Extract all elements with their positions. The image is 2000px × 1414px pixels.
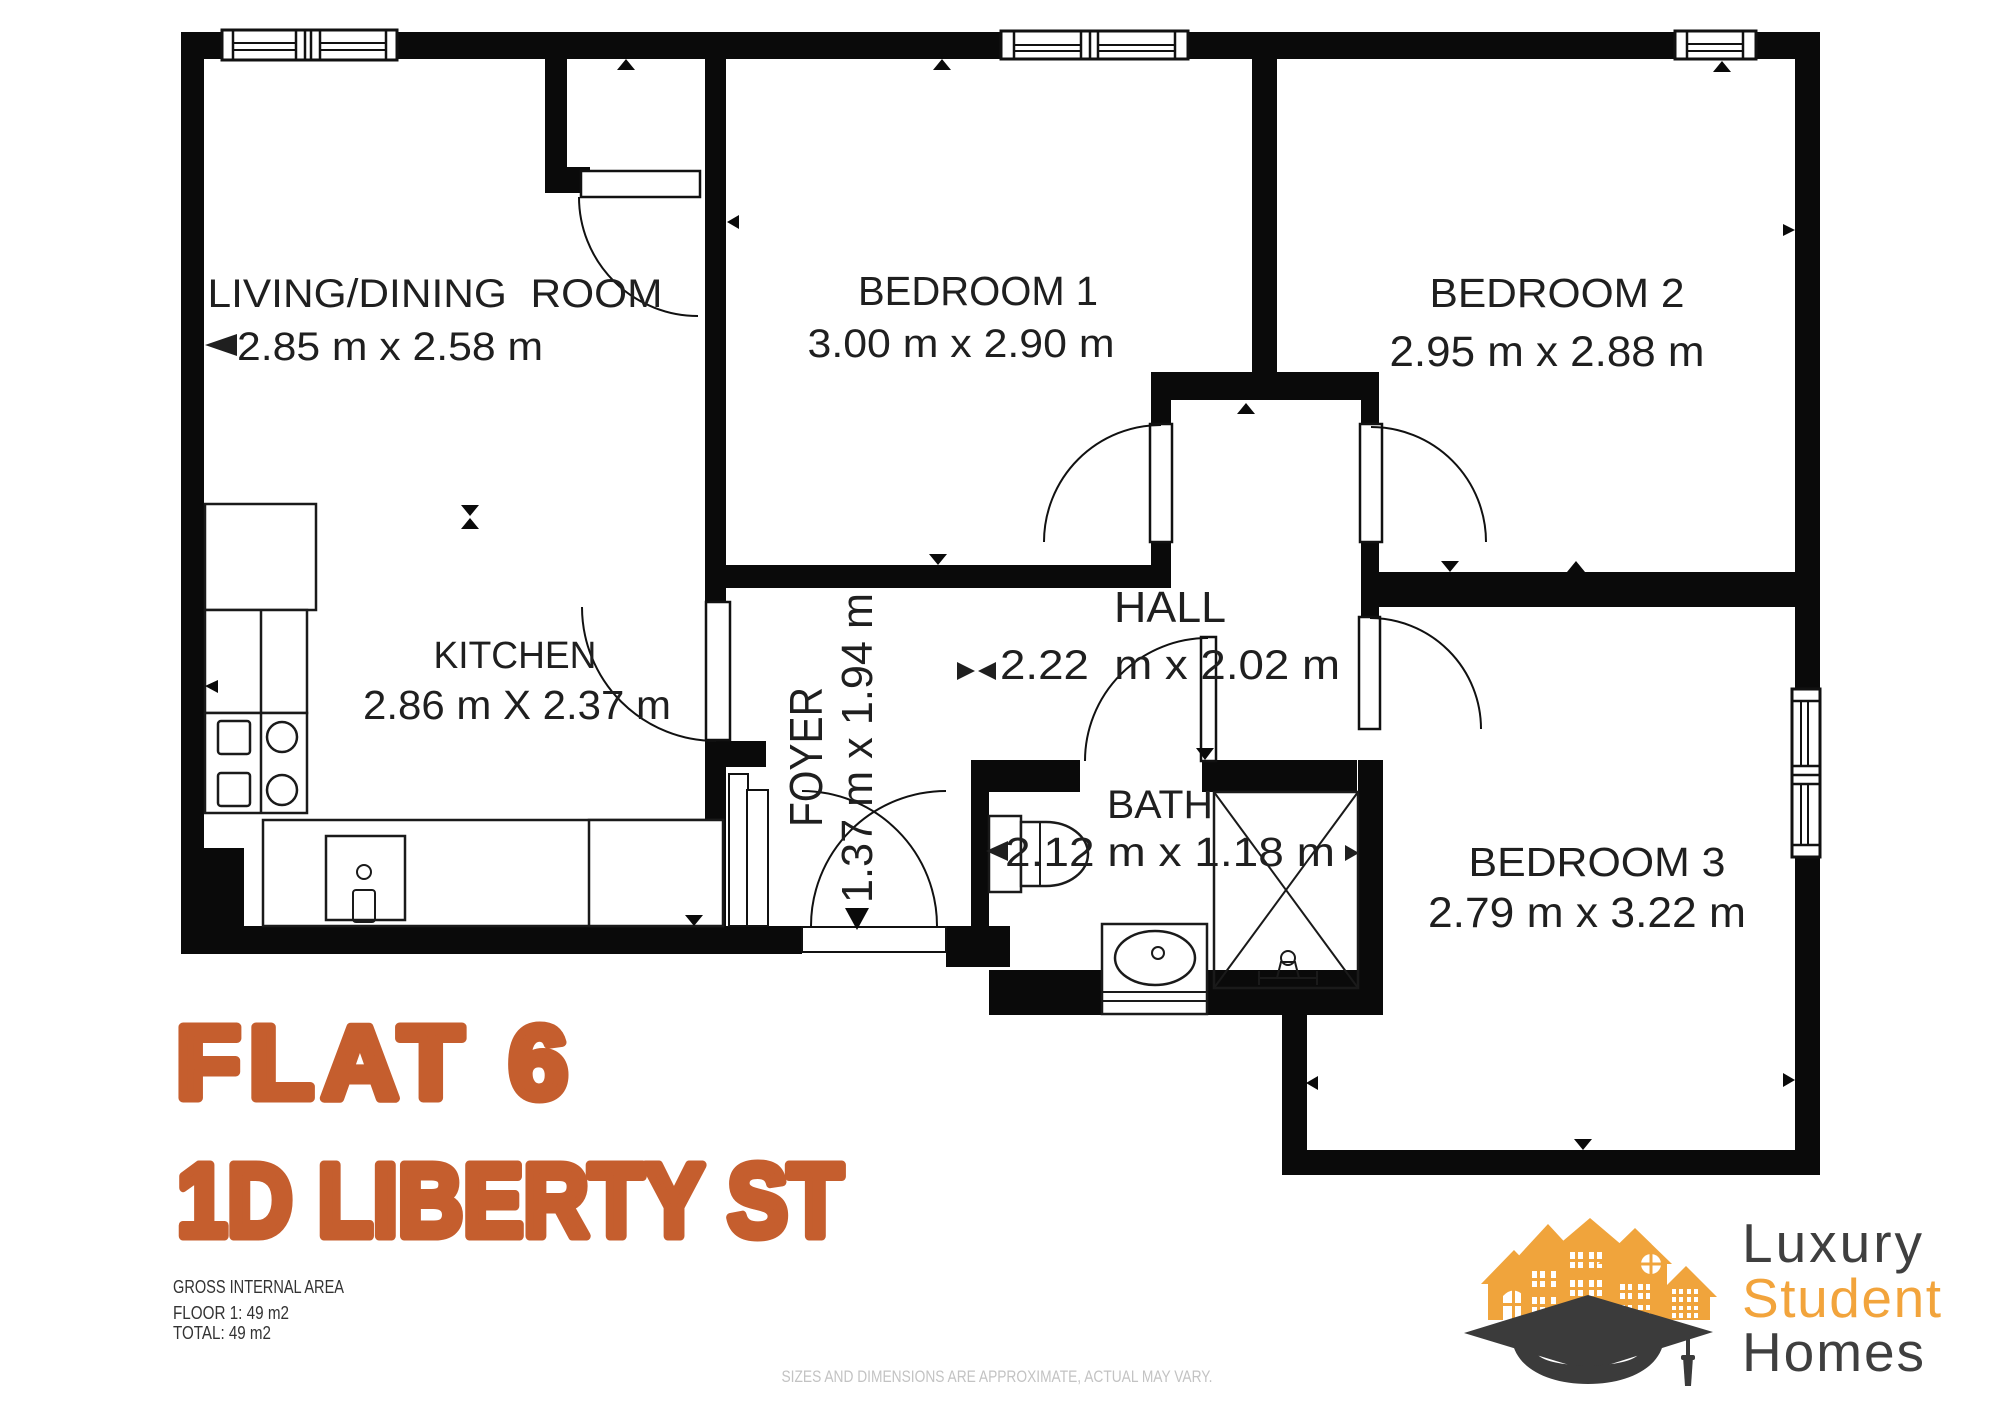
- svg-text:LIVING/DINING ROOM: LIVING/DINING ROOM: [208, 272, 663, 316]
- svg-text:2.79 m x 3.22 m: 2.79 m x 3.22 m: [1428, 889, 1746, 937]
- svg-text:BEDROOM 3: BEDROOM 3: [1469, 839, 1726, 885]
- svg-text:2.95 m x 2.88 m: 2.95 m x 2.88 m: [1390, 328, 1705, 376]
- svg-text:2.22 m x 2.02 m: 2.22 m x 2.02 m: [1000, 641, 1340, 688]
- svg-text:Luxury: Luxury: [1742, 1212, 1923, 1274]
- svg-text:2.86 m X 2.37 m: 2.86 m X 2.37 m: [363, 682, 671, 728]
- svg-text:SIZES AND DIMENSIONS ARE APPRO: SIZES AND DIMENSIONS ARE APPROXIMATE, AC…: [782, 1368, 1213, 1386]
- svg-text:BEDROOM 1: BEDROOM 1: [858, 268, 1098, 314]
- svg-text:BATH: BATH: [1107, 783, 1213, 827]
- svg-text:Homes: Homes: [1742, 1321, 1924, 1383]
- svg-text:2.85 m x 2.58 m: 2.85 m x 2.58 m: [237, 325, 543, 369]
- svg-text:GROSS INTERNAL AREA: GROSS INTERNAL AREA: [173, 1277, 344, 1297]
- svg-text:FOYER: FOYER: [780, 687, 832, 827]
- svg-text:Student: Student: [1742, 1267, 1941, 1329]
- svg-text:HALL: HALL: [1114, 583, 1226, 632]
- svg-text:2.12 m x 1.18 m: 2.12 m x 1.18 m: [1005, 829, 1335, 875]
- svg-text:KITCHEN: KITCHEN: [434, 635, 597, 677]
- svg-text:FLAT 6: FLAT 6: [176, 1005, 576, 1120]
- svg-text:TOTAL: 49 m2: TOTAL: 49 m2: [173, 1323, 271, 1343]
- svg-text:BEDROOM 2: BEDROOM 2: [1430, 270, 1685, 316]
- svg-text:FLOOR 1: 49 m2: FLOOR 1: 49 m2: [173, 1303, 289, 1323]
- svg-text:3.00 m x 2.90 m: 3.00 m x 2.90 m: [808, 322, 1115, 366]
- svg-text:1D LIBERTY ST: 1D LIBERTY ST: [177, 1143, 843, 1258]
- svg-text:1.37 m x 1.94 m: 1.37 m x 1.94 m: [833, 593, 882, 903]
